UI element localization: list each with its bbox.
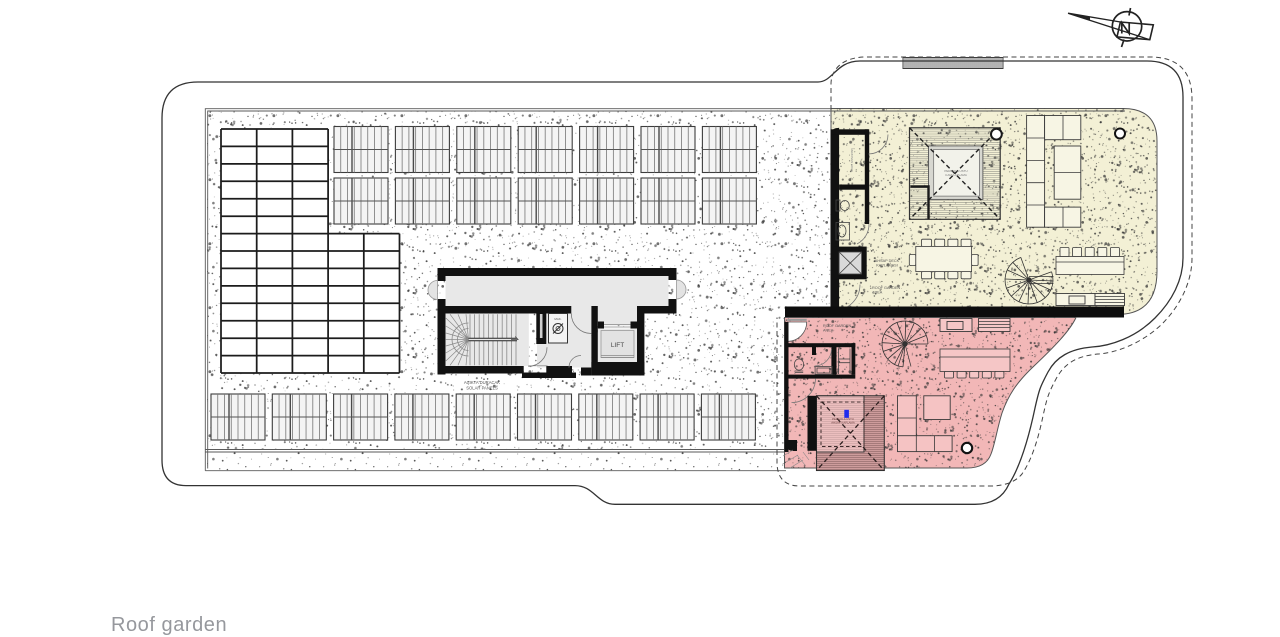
svg-text:ROOF GARDEN: ROOF GARDEN [872,286,901,290]
svg-text:KAPLAMASI: KAPLAMASI [876,264,898,268]
svg-text:MERDIVEN HOLU: MERDIVEN HOLU [850,148,854,171]
svg-text:AHSAP DECK: AHSAP DECK [875,259,900,263]
svg-text:ROOF GARDEN: ROOF GARDEN [823,324,852,328]
svg-text:AREA: AREA [872,291,883,295]
svg-text:AREA: AREA [823,329,834,333]
svg-text:Roof garden: Roof garden [111,614,227,636]
svg-text:CAM KAPLAMA: CAM KAPLAMA [945,173,967,177]
svg-text:MAK.: MAK. [554,317,562,321]
svg-text:AHSAP KAPLAMA: AHSAP KAPLAMA [831,421,855,425]
svg-text:LIFT: LIFT [611,342,624,349]
svg-text:SOLAR PANELS: SOLAR PANELS [466,386,498,391]
svg-text:AÇIKTA DURACAK: AÇIKTA DURACAK [464,380,500,385]
